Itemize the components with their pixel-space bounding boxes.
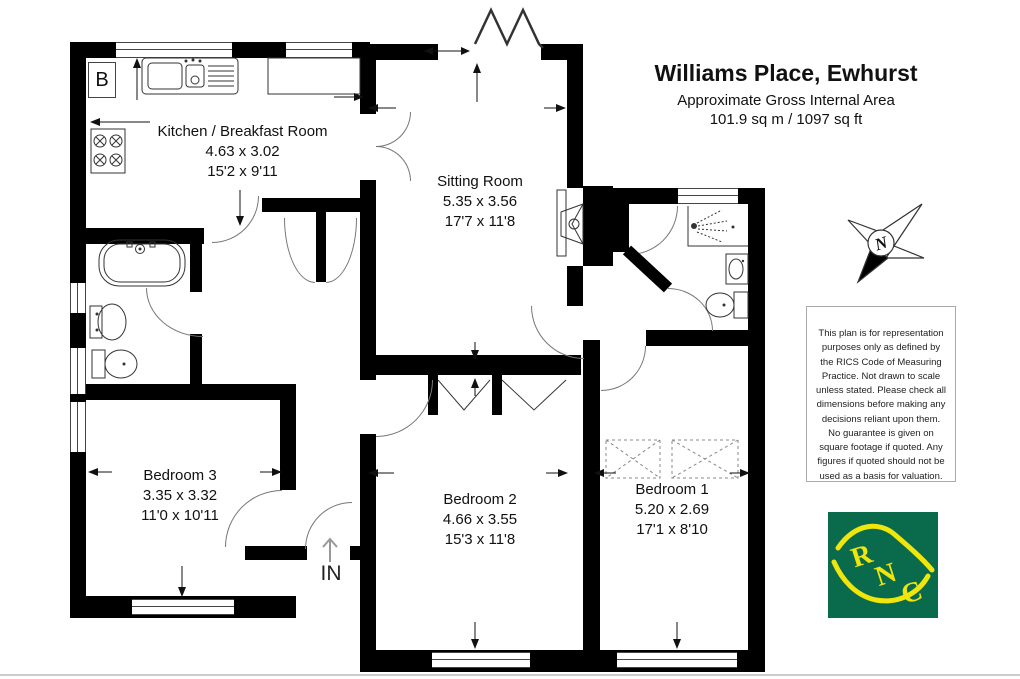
wall (567, 44, 583, 188)
window (70, 402, 86, 452)
kitchen-sink-icon (142, 58, 238, 94)
room-metric: 5.20 x 2.69 (597, 500, 747, 520)
room-imperial: 17'1 x 8'10 (597, 520, 747, 540)
boiler-label: B (95, 69, 108, 92)
room-label-sitting: Sitting Room 5.35 x 3.56 17'7 x 11'8 (395, 172, 565, 231)
wall (361, 355, 581, 375)
wall (190, 228, 202, 292)
room-name: Sitting Room (395, 172, 565, 192)
door-arc (668, 288, 713, 331)
wall (613, 204, 629, 252)
entrance-label: IN (314, 562, 348, 586)
door-arc (376, 112, 411, 147)
window (70, 348, 86, 394)
room-name: Bedroom 3 (105, 466, 255, 486)
door-arc (326, 218, 357, 283)
wall (567, 266, 583, 306)
wall (316, 212, 326, 282)
bathroom-toilet-icon (92, 350, 137, 378)
door-arc (146, 288, 203, 337)
door-arc (284, 218, 315, 283)
window (286, 42, 352, 58)
room-metric: 4.63 x 3.02 (140, 142, 345, 162)
compass-icon: N (848, 204, 924, 282)
room-metric: 3.35 x 3.32 (105, 486, 255, 506)
disclaimer-box: This plan is for representation purposes… (806, 306, 956, 482)
room-imperial: 11'0 x 10'11 (105, 506, 255, 526)
door-arc (376, 380, 433, 437)
wall (86, 384, 296, 400)
wall (360, 180, 376, 380)
room-metric: 5.35 x 3.56 (395, 192, 565, 212)
wall (86, 228, 204, 244)
shower-basin-icon (726, 254, 748, 284)
hob-icon (91, 129, 125, 173)
subtitle: Approximate Gross Internal Area (618, 92, 954, 109)
page-title: Williams Place, Ewhurst (618, 60, 954, 87)
diagonal-wall (627, 250, 668, 288)
disclaimer-text: This plan is for representation purposes… (816, 328, 946, 482)
wall (748, 188, 765, 670)
compass-north-label: N (871, 232, 890, 254)
window (617, 652, 737, 668)
bathroom-basin-icon (90, 304, 126, 340)
door-arc (601, 346, 646, 391)
shower-icon (688, 206, 748, 246)
title-block: Williams Place, Ewhurst Approximate Gros… (618, 60, 954, 128)
bath-icon (99, 240, 185, 286)
window (432, 652, 530, 668)
room-imperial: 15'3 x 11'8 (405, 530, 555, 550)
room-imperial: 15'2 x 9'11 (140, 162, 345, 182)
wardrobe-doors-bedroom2 (438, 380, 566, 410)
door-arc (212, 196, 259, 243)
wall (360, 434, 376, 652)
kitchen-worktop (268, 58, 360, 94)
window (70, 283, 86, 313)
agency-logo: R N C (828, 512, 938, 618)
page-edge-line (0, 674, 1020, 676)
shower-toilet-icon (706, 292, 748, 318)
window (116, 42, 232, 58)
door-arc (531, 306, 584, 359)
door-arc (629, 206, 678, 255)
wall (360, 44, 438, 60)
door-arc (305, 502, 352, 549)
room-label-bedroom2: Bedroom 2 4.66 x 3.55 15'3 x 11'8 (405, 490, 555, 549)
room-label-kitchen: Kitchen / Breakfast Room 4.63 x 3.02 15'… (140, 122, 345, 181)
wall (245, 546, 307, 560)
room-name: Bedroom 1 (597, 480, 747, 500)
bifold-door-zigzag (475, 10, 543, 48)
room-label-bedroom1: Bedroom 1 5.20 x 2.69 17'1 x 8'10 (597, 480, 747, 539)
room-metric: 4.66 x 3.55 (405, 510, 555, 530)
room-name: Bedroom 2 (405, 490, 555, 510)
room-imperial: 17'7 x 11'8 (395, 212, 565, 232)
wall (70, 42, 86, 618)
area-value: 101.9 sq m / 1097 sq ft (618, 111, 954, 128)
window (678, 188, 738, 204)
wardrobes-bedroom1 (606, 440, 738, 478)
room-name: Kitchen / Breakfast Room (140, 122, 345, 142)
wall (262, 198, 362, 212)
boiler-box: B (88, 62, 116, 98)
wall (646, 330, 748, 346)
wall (280, 400, 296, 490)
window (132, 599, 234, 615)
room-label-bedroom3: Bedroom 3 3.35 x 3.32 11'0 x 10'11 (105, 466, 255, 525)
wardrobe-divider (492, 375, 502, 415)
floorplan-canvas: N Williams Place, Ewhurst Approximate Gr… (0, 0, 1020, 679)
